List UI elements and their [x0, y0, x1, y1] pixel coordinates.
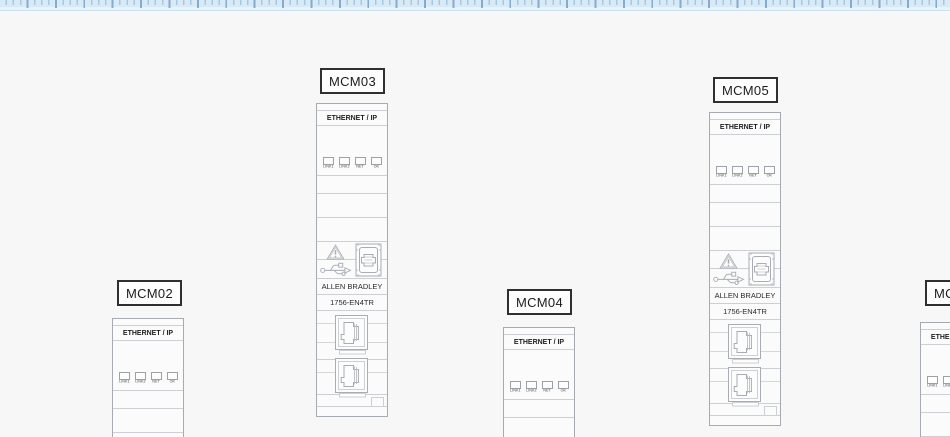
module-tag-text: MCM06: [934, 286, 950, 301]
module-blank-row: [921, 395, 950, 413]
led-label: LINK2: [732, 174, 742, 178]
module-top-strip: [504, 328, 574, 335]
module-tag-text: MCM02: [126, 286, 173, 301]
brand-label: ALLEN BRADLEY: [317, 279, 387, 295]
led-indicator: [167, 372, 178, 380]
rj45-jack-section: [710, 369, 780, 404]
module-blank-row: [317, 395, 387, 407]
led-indicator: [716, 166, 727, 174]
module-tag-label[interactable]: MCM02: [117, 280, 182, 306]
led-label: NET: [356, 165, 363, 169]
module-body[interactable]: ETHERNET / IP LINK1 LINK2 NET OK: [920, 322, 950, 437]
led-indicator: [943, 376, 950, 384]
module-tag-label[interactable]: MCM04: [507, 289, 572, 315]
module-header-label: ETHERNET / IP: [317, 111, 387, 126]
horizontal-ruler: [0, 0, 950, 11]
rj45-jack-section: [317, 360, 387, 395]
led-indicator: [764, 166, 775, 174]
module-bottom-strip: [317, 407, 387, 416]
module-tag-label[interactable]: MCM03: [320, 68, 385, 94]
led-indicator: [119, 372, 130, 380]
module-body[interactable]: ETHERNET / IP LINK1 LINK2 NET OK: [112, 318, 184, 437]
warning-triangle-icon: [326, 244, 345, 260]
module-blank-row: [113, 409, 183, 433]
module-header-label: ETHERNET / IP: [113, 326, 183, 341]
module-tag-text: MCM05: [722, 83, 769, 98]
led-indicator: [542, 381, 553, 389]
module-blank-row: [504, 418, 574, 437]
led-label: LINK2: [943, 384, 950, 388]
led-indicator: [135, 372, 146, 380]
module-header-label: ETHERNET / IP: [504, 335, 574, 350]
led-section: LINK1 LINK2 NET OK: [113, 341, 183, 391]
module-bottom-strip: [710, 416, 780, 425]
model-label: 1756-EN4TR: [317, 295, 387, 311]
led-indicator: [151, 372, 162, 380]
module-blank-row: [317, 176, 387, 194]
led-indicator: [748, 166, 759, 174]
module-blank-row: [710, 185, 780, 203]
module-top-strip: [710, 113, 780, 120]
led-label: LINK2: [339, 165, 349, 169]
module-tag-label[interactable]: MCM06: [925, 280, 950, 306]
module-icon-section: [710, 251, 780, 288]
led-indicator: [371, 157, 382, 165]
usb-trident-icon: [712, 270, 745, 285]
rj45-jack-section: [317, 311, 387, 360]
led-section: LINK1 LINK2 NET OK: [921, 345, 950, 395]
led-label: OK: [169, 380, 174, 384]
module-tag-text: MCM04: [516, 295, 563, 310]
led-indicator: [510, 381, 521, 389]
module-blank-row: [710, 203, 780, 227]
led-label: LINK1: [716, 174, 726, 178]
module-body[interactable]: ETHERNET / IP LINK1 LINK2 NET OK: [709, 112, 781, 426]
module-top-strip: [113, 319, 183, 326]
module-tag-text: MCM03: [329, 74, 376, 89]
rj45-jack-icon: [334, 357, 371, 399]
led-label: LINK1: [927, 384, 937, 388]
led-section: LINK1 LINK2 NET OK: [504, 350, 574, 400]
led-indicator: [526, 381, 537, 389]
ethernet-port-icon: [748, 252, 775, 286]
module-blank-row: [710, 404, 780, 416]
rj45-jack-icon: [727, 323, 764, 365]
module-top-strip: [921, 323, 950, 330]
led-label: LINK2: [526, 389, 536, 393]
rj45-jack-icon: [334, 314, 371, 356]
module-body[interactable]: ETHERNET / IP LINK1 LINK2 NET OK: [316, 103, 388, 417]
module-tag-label[interactable]: MCM05: [713, 77, 778, 103]
led-label: NET: [152, 380, 159, 384]
led-section: LINK1 LINK2 NET OK: [317, 126, 387, 176]
led-label: OK: [766, 174, 771, 178]
module-header-label: ETHERNET / IP: [710, 120, 780, 135]
led-indicator: [558, 381, 569, 389]
led-label: LINK1: [510, 389, 520, 393]
rj45-jack-section: [710, 320, 780, 369]
module-blank-row: [113, 391, 183, 409]
led-indicator: [927, 376, 938, 384]
module-blank-row: [113, 433, 183, 437]
module-header-label: ETHERNET / IP: [921, 330, 950, 345]
led-label: LINK1: [323, 165, 333, 169]
module-blank-row: [710, 227, 780, 251]
rj45-jack-icon: [727, 366, 764, 408]
led-label: OK: [373, 165, 378, 169]
ethernet-port-icon: [355, 243, 382, 277]
module-body[interactable]: ETHERNET / IP LINK1 LINK2 NET OK: [503, 327, 575, 437]
usb-trident-icon: [319, 261, 352, 276]
brand-label: ALLEN BRADLEY: [710, 288, 780, 304]
led-label: NET: [749, 174, 756, 178]
led-indicator: [339, 157, 350, 165]
module-top-strip: [317, 104, 387, 111]
led-label: LINK2: [135, 380, 145, 384]
led-label: OK: [560, 389, 565, 393]
module-blank-row: [317, 194, 387, 218]
led-label: NET: [543, 389, 550, 393]
model-label: 1756-EN4TR: [710, 304, 780, 320]
led-indicator: [732, 166, 743, 174]
module-blank-row: [921, 413, 950, 437]
warning-triangle-icon: [719, 253, 738, 269]
led-label: LINK1: [119, 380, 129, 384]
schematic-canvas[interactable]: MCM02 ETHERNET / IP LINK1 LINK2 NET OK: [0, 0, 950, 437]
led-indicator: [323, 157, 334, 165]
led-indicator: [355, 157, 366, 165]
module-blank-row: [504, 400, 574, 418]
led-section: LINK1 LINK2 NET OK: [710, 135, 780, 185]
module-blank-row: [317, 218, 387, 242]
module-icon-section: [317, 242, 387, 279]
